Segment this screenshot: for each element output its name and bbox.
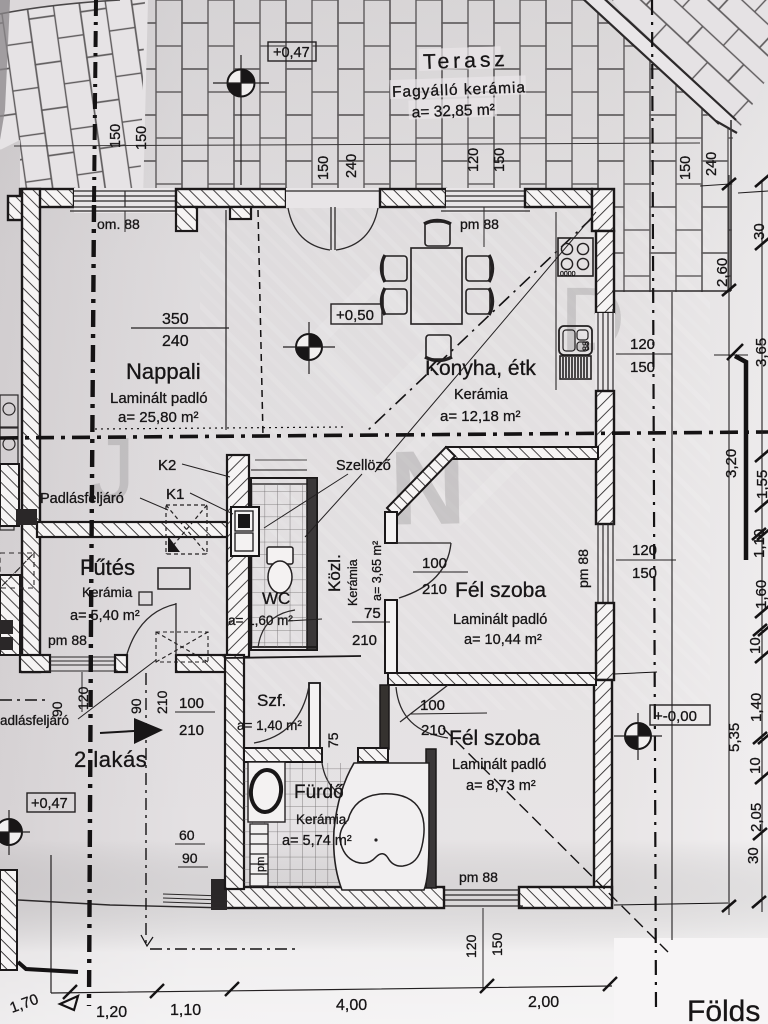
svg-text:2,60: 2,60 [714,258,731,287]
svg-text:1,10: 1,10 [170,1002,201,1019]
svg-text:240: 240 [162,333,189,350]
svg-text:pm 88: pm 88 [460,216,499,232]
svg-text:60: 60 [179,827,195,843]
svg-text:10: 10 [747,637,764,654]
svg-text:+0,50: +0,50 [336,307,374,324]
svg-text:150: 150 [489,932,505,956]
svg-text:5,35: 5,35 [726,723,743,752]
svg-text:Fél szoba: Fél szoba [455,579,546,602]
svg-text:Fűtés: Fűtés [80,555,135,580]
svg-text:Terasz: Terasz [423,48,510,74]
svg-text:150: 150 [108,124,124,148]
svg-text:Kerámia: Kerámia [454,387,509,403]
svg-text:150: 150 [316,156,332,180]
svg-text:Kerámia: Kerámia [82,585,133,600]
svg-text:30: 30 [751,223,768,240]
svg-text:1,40: 1,40 [748,693,765,722]
svg-text:Szellöző: Szellöző [336,458,391,474]
svg-text:120: 120 [632,542,657,559]
svg-text:4,00: 4,00 [336,997,367,1014]
svg-text:100: 100 [420,697,445,714]
svg-text:90: 90 [49,701,65,717]
svg-text:0000: 0000 [560,271,576,278]
svg-text:240: 240 [344,154,360,178]
svg-text:120: 120 [466,148,482,172]
svg-text:Földs: Földs [687,995,760,1024]
svg-text:Fél szoba: Fél szoba [449,727,540,750]
svg-text:WC: WC [262,589,290,608]
svg-text:+0,47: +0,47 [31,796,68,812]
svg-text:2.lakás: 2.lakás [74,747,147,772]
svg-text:150: 150 [492,148,508,172]
svg-text:pm: pm [255,857,267,872]
svg-text:210: 210 [154,690,170,714]
svg-text:pm 88: pm 88 [48,632,87,648]
svg-text:30: 30 [745,847,762,864]
svg-text:K2: K2 [158,457,176,474]
svg-text:88: 88 [581,341,591,351]
svg-text:a= 1,40 m²: a= 1,40 m² [237,718,302,733]
svg-text:Nappali: Nappali [126,359,201,384]
svg-text:a= 25,80 m²: a= 25,80 m² [118,409,198,426]
svg-text:90: 90 [182,850,198,866]
svg-text:+0,47: +0,47 [273,45,310,61]
svg-text:+-0,00: +-0,00 [654,708,697,725]
svg-text:Fürdő: Fürdő [294,782,344,803]
svg-text:150: 150 [632,565,657,582]
svg-text:Kerámia: Kerámia [296,812,347,827]
svg-text:1,10: 1,10 [751,529,768,558]
svg-text:1,60: 1,60 [753,580,768,609]
svg-text:100: 100 [179,695,204,712]
svg-text:210: 210 [352,632,377,649]
svg-text:120: 120 [630,336,655,353]
svg-text:1,55: 1,55 [754,470,768,499]
svg-text:75: 75 [364,605,381,622]
svg-text:a= 12,18 m²: a= 12,18 m² [440,408,520,425]
svg-text:a= 5,40 m²: a= 5,40 m² [70,608,140,624]
svg-text:a= 8,73 m²: a= 8,73 m² [466,778,536,794]
svg-text:om. 88: om. 88 [97,216,140,232]
svg-text:a= 10,44 m²: a= 10,44 m² [464,632,542,648]
svg-text:Laminált padló: Laminált padló [452,757,546,773]
svg-text:Laminált padló: Laminált padló [110,390,208,407]
svg-text:150: 150 [134,126,150,150]
svg-text:Konyha, étk: Konyha, étk [425,357,536,380]
svg-text:pm 88: pm 88 [459,869,498,885]
svg-text:Kerámia: Kerámia [346,559,360,606]
svg-text:Közl.: Közl. [325,554,344,592]
svg-text:Szf.: Szf. [257,691,286,710]
svg-text:a= 5,74 m²: a= 5,74 m² [282,833,352,849]
svg-text:2,00: 2,00 [528,994,559,1011]
svg-text:240: 240 [704,152,720,176]
svg-text:a= 3,65 m²: a= 3,65 m² [370,541,384,601]
svg-text:Laminált padló: Laminált padló [453,612,547,628]
svg-text:350: 350 [162,311,189,328]
svg-text:3,65: 3,65 [753,338,768,367]
svg-text:90: 90 [128,698,144,714]
svg-text:K1: K1 [166,486,184,503]
svg-text:210: 210 [421,722,446,739]
svg-text:100: 100 [422,555,447,572]
svg-text:210: 210 [422,581,447,598]
svg-text:120: 120 [75,686,91,710]
svg-text:Padlásfeljáró: Padlásfeljáró [40,491,124,507]
svg-text:150: 150 [630,359,655,376]
svg-text:2,05: 2,05 [748,803,765,832]
svg-text:pm 88: pm 88 [575,549,591,588]
svg-text:a= 32,85 m²: a= 32,85 m² [411,101,495,121]
svg-text:1,20: 1,20 [96,1004,127,1021]
svg-text:a= 1,60 m²: a= 1,60 m² [228,613,293,628]
svg-text:75: 75 [325,732,341,748]
svg-text:3,20: 3,20 [723,449,740,478]
svg-text:10: 10 [747,757,764,774]
svg-text:210: 210 [179,722,204,739]
svg-text:120: 120 [463,934,479,958]
svg-text:150: 150 [678,156,694,180]
